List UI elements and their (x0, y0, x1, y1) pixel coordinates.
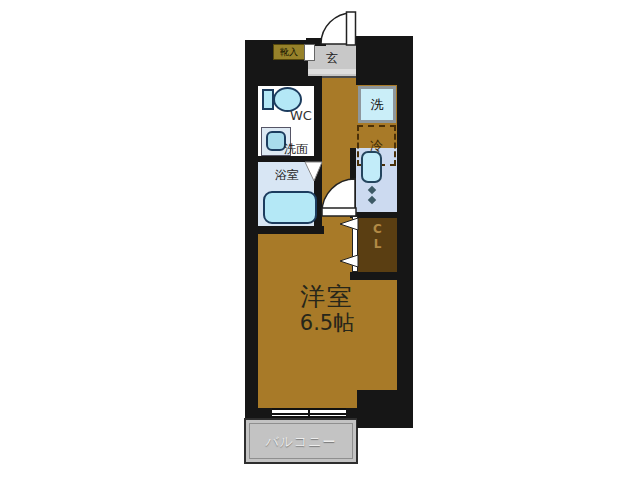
entrance-step (308, 69, 356, 74)
washbasin-bowl-icon (266, 131, 286, 151)
wall-top-right (356, 36, 397, 85)
kitchen-sink-icon (361, 151, 382, 183)
wall-bath-bottom (245, 226, 324, 234)
wc-label: WC (290, 108, 312, 123)
bathtub-icon (263, 191, 317, 224)
wall-wc-top (258, 76, 318, 86)
washing-machine-label: 洗 (371, 96, 384, 114)
entry-door-swing (298, 8, 360, 48)
main-room-size: 6.5帖 (257, 311, 397, 335)
main-room-label: 洋室 6.5帖 (257, 283, 397, 335)
wall-right (397, 36, 413, 428)
main-room-name: 洋室 (257, 283, 397, 311)
window-divider (308, 410, 310, 416)
shoe-storage-label: 靴入 (280, 46, 298, 59)
closet-label-line2: L (358, 237, 397, 252)
balcony-window (272, 408, 346, 418)
balcony-label: バルコニー (244, 433, 358, 451)
closet-door-marks (338, 214, 360, 274)
wall-bottom-right (357, 390, 397, 428)
closet-label-line1: C (358, 222, 397, 237)
entrance-label: 玄 (308, 50, 356, 67)
shoe-storage-box: 靴入 (273, 44, 305, 60)
floor-plan: 靴入 玄 WC 洗面 浴室 洗 冷 C L 洋室 6.5帖 (0, 0, 640, 480)
washing-machine-icon: 洗 (358, 86, 396, 123)
washbasin-label: 洗面 (284, 141, 308, 158)
closet-label: C L (358, 222, 397, 252)
bathroom-label: 浴室 (275, 167, 299, 184)
